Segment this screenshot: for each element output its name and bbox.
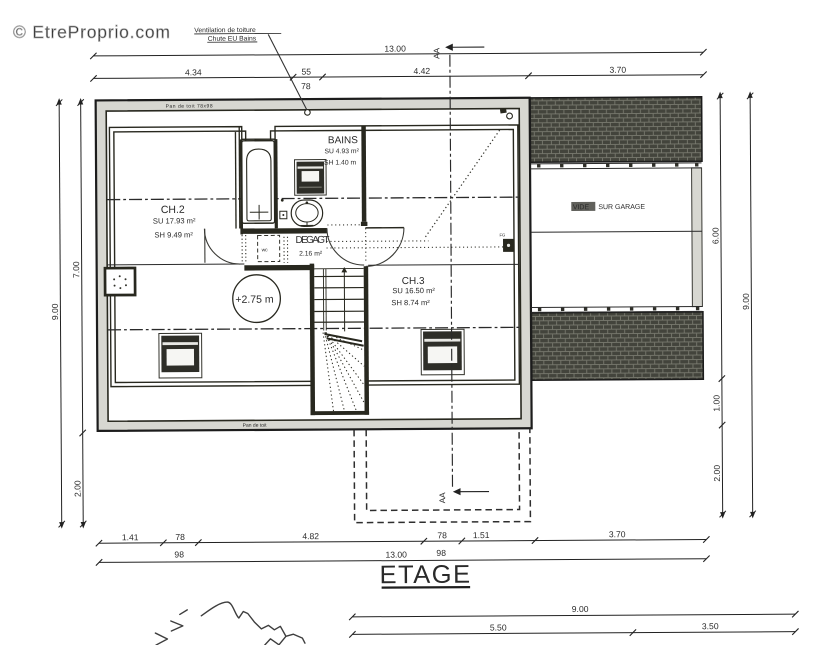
svg-text:wc: wc (262, 247, 269, 253)
svg-text:2.00: 2.00 (72, 480, 82, 497)
svg-text:+2.75 m: +2.75 m (235, 294, 274, 306)
svg-text:1.00: 1.00 (711, 395, 721, 412)
svg-text:78: 78 (301, 81, 311, 91)
svg-text:4.42: 4.42 (413, 66, 430, 76)
svg-text:VIDE: VIDE (573, 204, 590, 211)
svg-text:3.70: 3.70 (609, 529, 626, 539)
svg-text:1.41: 1.41 (122, 532, 139, 542)
svg-text:2.00: 2.00 (712, 465, 722, 482)
svg-text:SH 9.49 m²: SH 9.49 m² (154, 230, 193, 239)
svg-text:Pan de toit 78x98: Pan de toit 78x98 (166, 103, 213, 109)
svg-text:4.34: 4.34 (185, 67, 202, 77)
svg-text:SH 1.40 m: SH 1.40 m (324, 160, 356, 167)
svg-text:ETAGE: ETAGE (379, 561, 471, 590)
svg-text:98: 98 (174, 549, 184, 559)
svg-text:13.00: 13.00 (384, 44, 406, 54)
svg-text:4.82: 4.82 (302, 531, 319, 541)
svg-text:Pan de toit: Pan de toit (243, 423, 268, 429)
svg-text:2.16 m²: 2.16 m² (299, 251, 323, 258)
svg-text:SU 17.93 m²: SU 17.93 m² (153, 216, 196, 225)
svg-text:AA: AA (432, 47, 441, 59)
svg-text:9.00: 9.00 (741, 293, 751, 310)
svg-text:55: 55 (301, 67, 311, 77)
svg-text:AA: AA (438, 492, 447, 504)
svg-text:9.00: 9.00 (50, 303, 60, 320)
svg-text:3.70: 3.70 (609, 65, 626, 75)
svg-text:6.00: 6.00 (710, 227, 720, 244)
svg-text:© EtreProprio.com: © EtreProprio.com (13, 22, 171, 42)
svg-text:DEGAGT: DEGAGT (295, 235, 329, 246)
svg-text:1.51: 1.51 (473, 530, 490, 540)
svg-text:5.50: 5.50 (490, 622, 507, 632)
svg-text:CH.2: CH.2 (161, 204, 185, 216)
svg-text:SU 16.50 m²: SU 16.50 m² (392, 286, 435, 295)
svg-text:BAINS: BAINS (328, 135, 358, 146)
svg-text:13.00: 13.00 (385, 550, 407, 560)
svg-text:SUR GARAGE: SUR GARAGE (598, 204, 645, 211)
svg-text:3.50: 3.50 (702, 621, 719, 631)
svg-text:98: 98 (436, 548, 446, 558)
svg-text:7.00: 7.00 (71, 261, 81, 278)
svg-text:SU 4.93 m²: SU 4.93 m² (324, 148, 359, 155)
svg-text:9.00: 9.00 (572, 604, 589, 614)
svg-text:78: 78 (437, 530, 447, 540)
svg-text:FG: FG (499, 232, 505, 237)
svg-text:SH 8.74 m²: SH 8.74 m² (391, 298, 430, 307)
svg-text:78: 78 (175, 532, 185, 542)
